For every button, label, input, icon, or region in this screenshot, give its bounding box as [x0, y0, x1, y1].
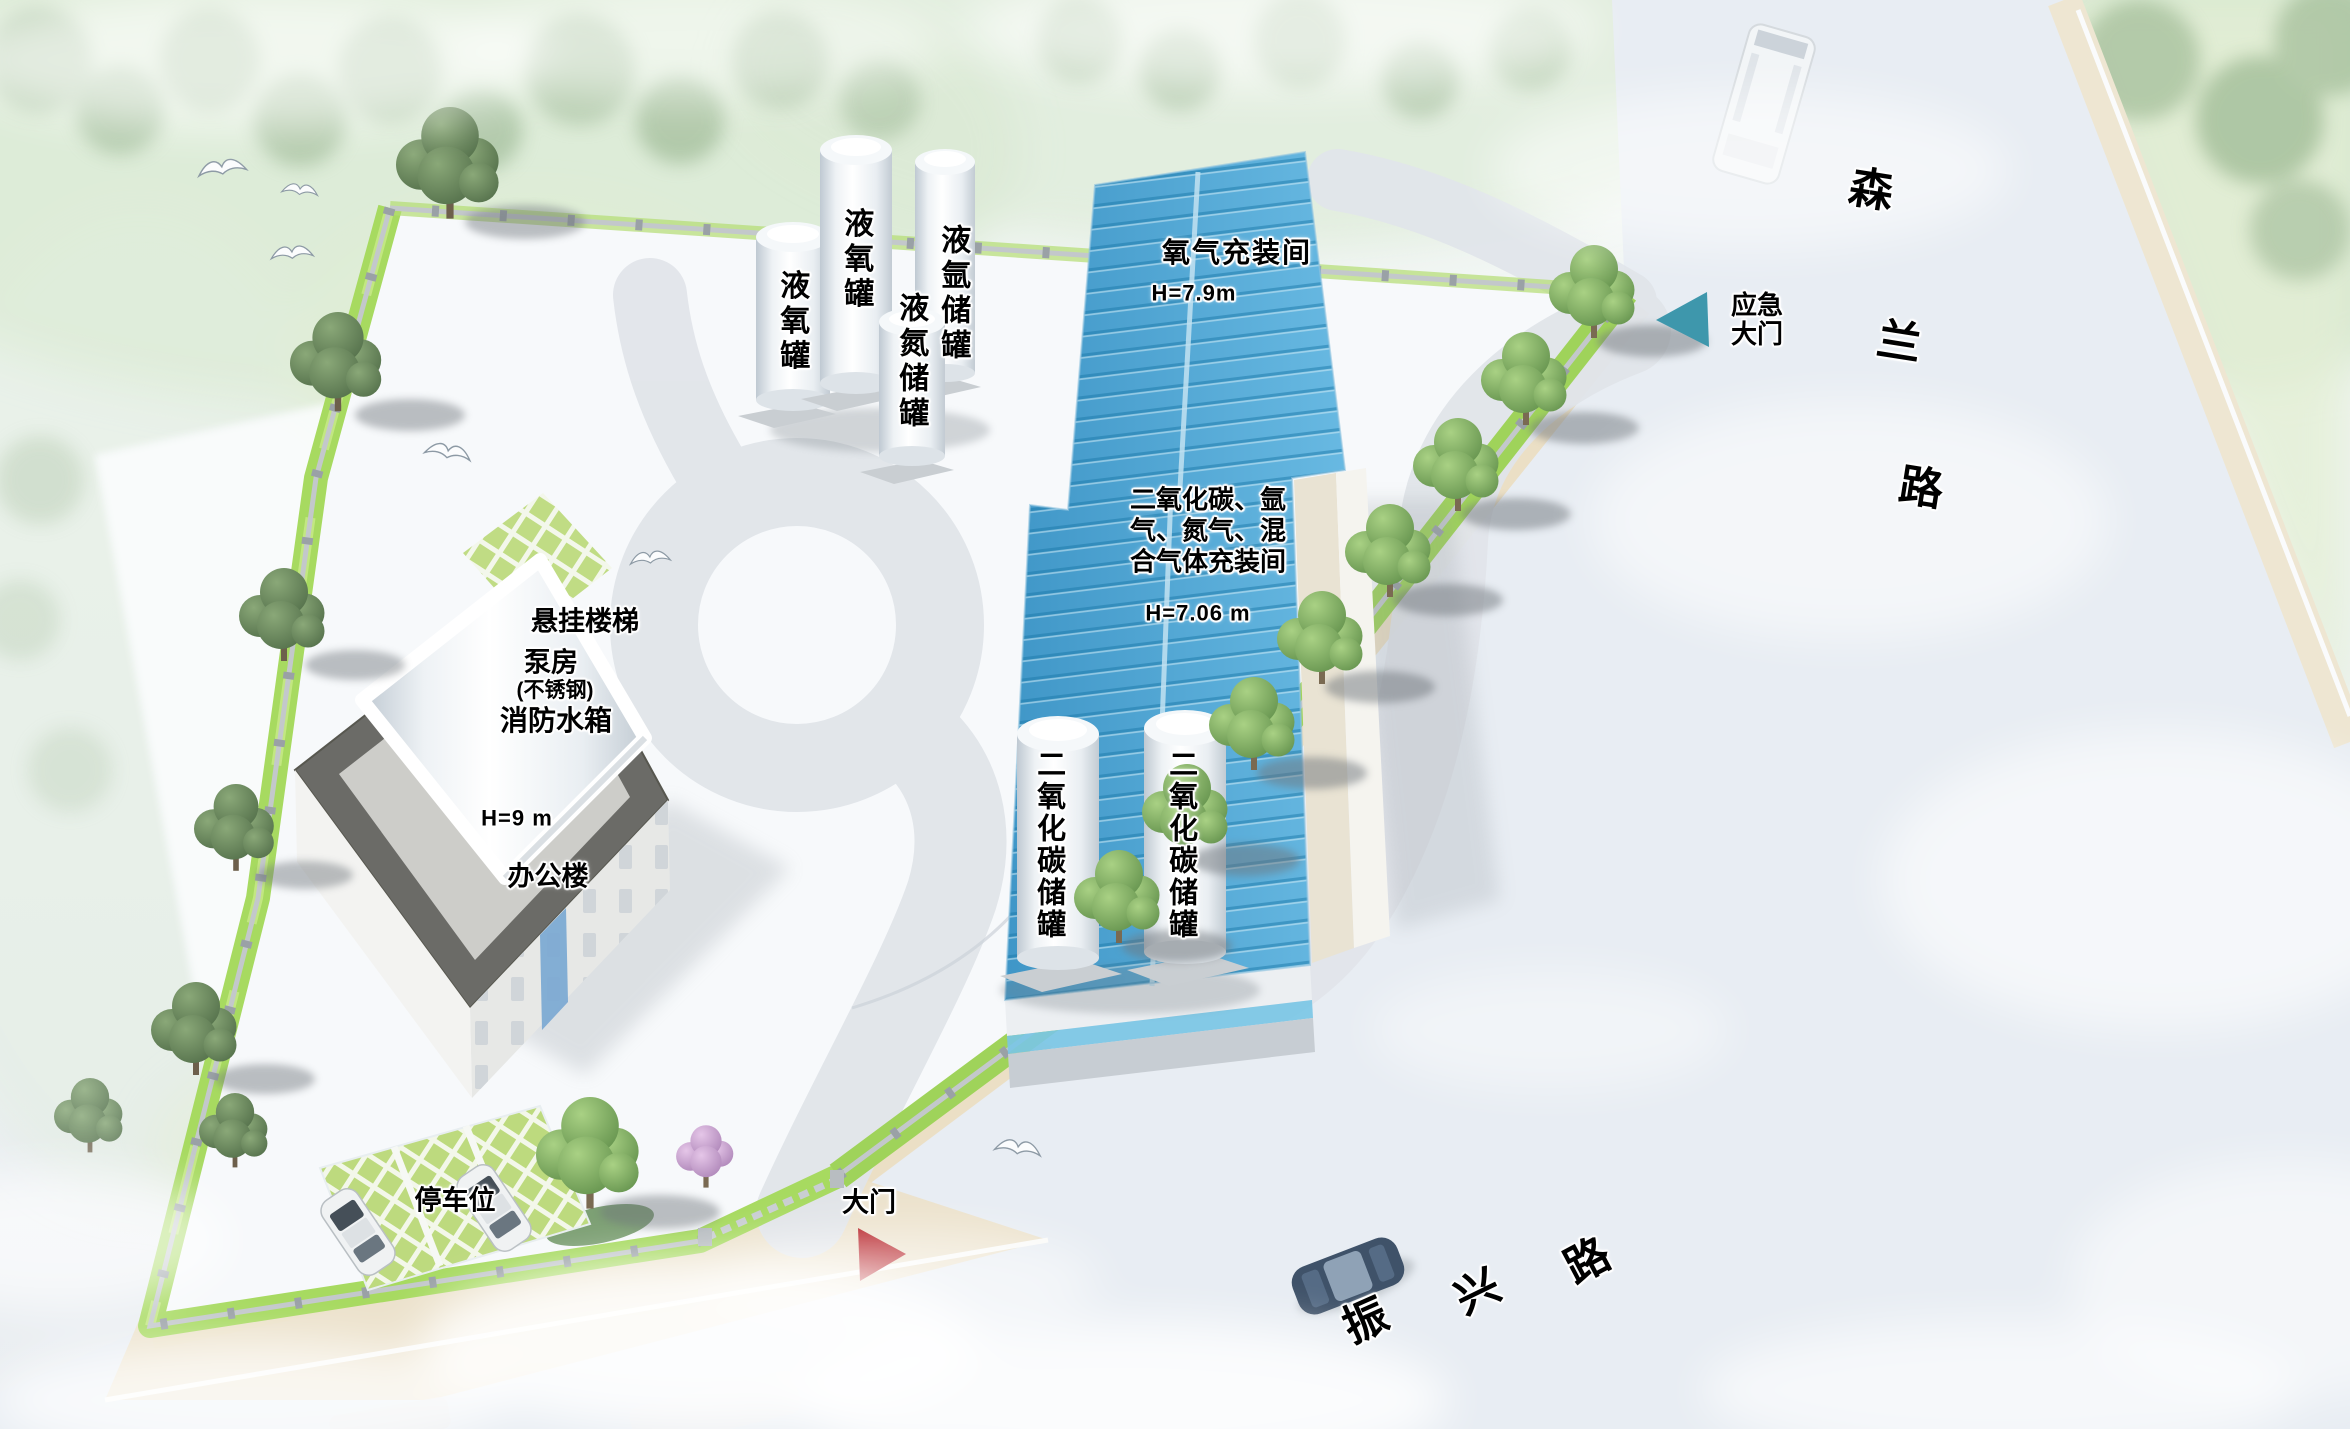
road-name-zhenxing-char1: 振	[1336, 1290, 1397, 1354]
label-emergency-gate-line1: 应急	[1731, 291, 1783, 320]
label-office-building: 办公楼	[508, 861, 589, 892]
label-mixed-room: 二氧化碳、氩 气、氮气、混 合气体充装间	[1130, 485, 1286, 578]
road-name-senlan-char2: 兰	[1873, 315, 1924, 372]
label-fire-water-tank: 消防水箱	[500, 705, 612, 737]
label-pump-room: 泵房	[524, 647, 578, 678]
label-stainless-steel: (不锈钢)	[517, 679, 594, 703]
label-mixed-room-line1: 二氧化碳、氩	[1130, 485, 1286, 516]
annotation-layer: 液氧罐 液氧罐 液氩储罐 液氮储罐 氧气充装间 H=7.9m 二氧化碳、氩 气、…	[0, 0, 2350, 1429]
label-oxygen-room: 氧气充装间	[1162, 237, 1312, 269]
label-nitrogen-tank: 液氮储罐	[893, 292, 928, 432]
label-lox-tank-b: 液氧罐	[838, 208, 873, 313]
label-mixed-room-line3: 合气体充装间	[1130, 547, 1286, 578]
road-name-zhenxing-char2: 兴	[1447, 1261, 1509, 1326]
label-oxygen-room-height: H=7.9m	[1152, 280, 1237, 305]
label-office-height: H=9 m	[481, 805, 553, 830]
road-name-zhenxing-char3: 路	[1557, 1229, 1620, 1294]
label-co2-tank-b: 二氧化碳储罐	[1163, 749, 1196, 941]
label-emergency-gate-line2: 大门	[1731, 320, 1783, 349]
label-main-gate: 大门	[842, 1187, 896, 1218]
label-lox-tank-a: 液氧罐	[774, 270, 809, 375]
label-argon-tank: 液氩储罐	[935, 224, 970, 364]
label-hanging-stairs: 悬挂楼梯	[531, 606, 639, 637]
label-mixed-room-line2: 气、氮气、混	[1130, 516, 1286, 547]
label-emergency-gate: 应急 大门	[1731, 291, 1783, 349]
site-plan-rendering: 液氧罐 液氧罐 液氩储罐 液氮储罐 氧气充装间 H=7.9m 二氧化碳、氩 气、…	[0, 0, 2350, 1429]
road-name-senlan-char1: 森	[1845, 163, 1896, 220]
label-co2-tank-a: 二氧化碳储罐	[1031, 749, 1064, 941]
label-parking-space: 停车位	[415, 1185, 496, 1216]
road-name-senlan-char3: 路	[1895, 461, 1946, 518]
label-mixed-room-height: H=7.06 m	[1145, 600, 1250, 625]
